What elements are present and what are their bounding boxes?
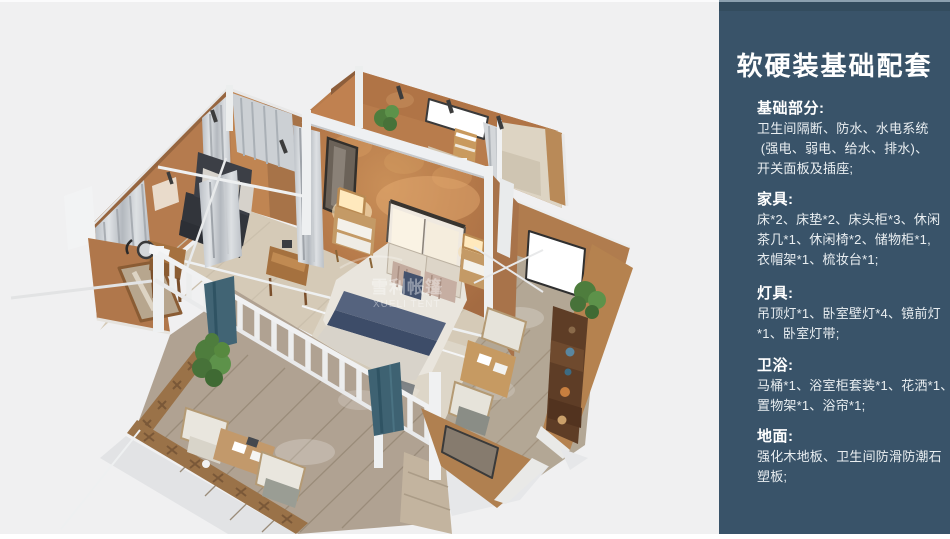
svg-text:XUELI TENT: XUELI TENT [373,299,441,310]
svg-text:雪利帐篷: 雪利帐篷 [371,277,443,297]
